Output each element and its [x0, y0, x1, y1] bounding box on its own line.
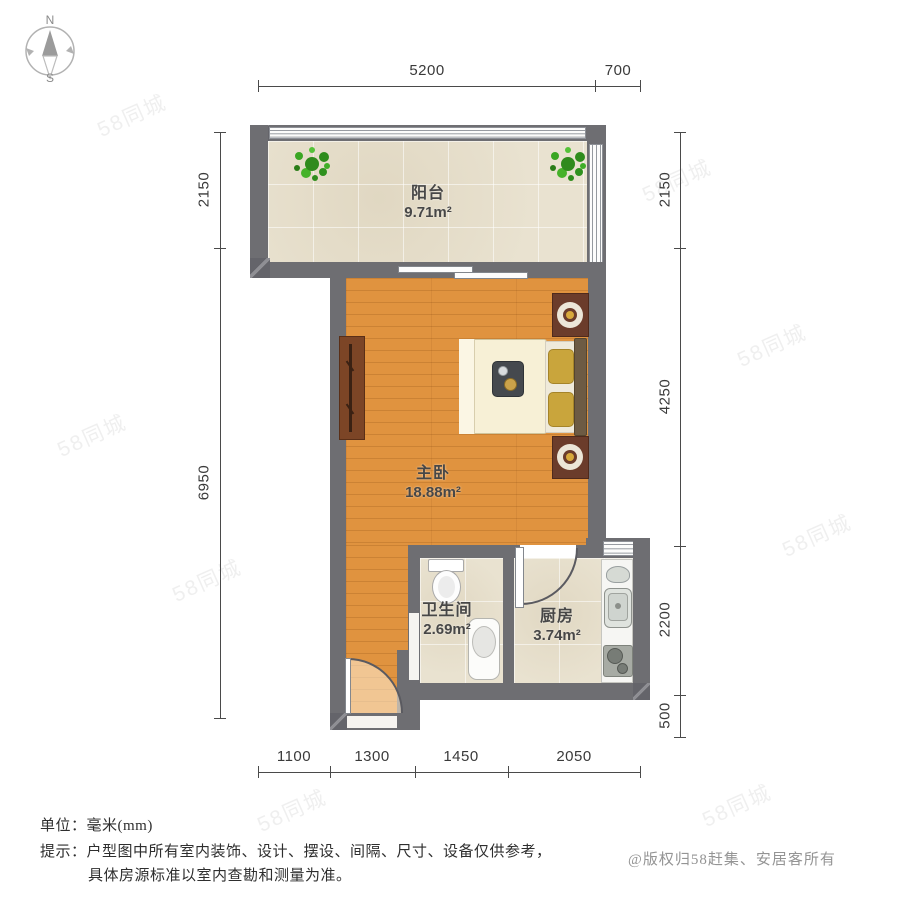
compass-icon: N S — [16, 12, 84, 84]
unit-note: 单位：毫米(mm) — [40, 814, 153, 835]
dim-tick — [640, 766, 641, 778]
wall-segment — [633, 538, 650, 700]
entrance-opening — [347, 716, 404, 728]
bathroom-name: 卫生间 — [397, 601, 497, 620]
pillow — [548, 392, 574, 427]
watermark: 58同城 — [637, 151, 716, 208]
watermark: 58同城 — [167, 551, 246, 608]
bed-fold — [459, 339, 475, 434]
bedroom-area: 18.88m² — [373, 483, 493, 502]
corner-block — [250, 258, 270, 278]
dim-tick — [640, 80, 641, 92]
dim-bottom-3: 2050 — [534, 748, 614, 765]
dim-right-0: 2150 — [657, 155, 674, 225]
wall-segment — [408, 683, 650, 700]
corner-block — [330, 713, 347, 730]
toilet-bowl — [438, 576, 455, 598]
room-label-bedroom: 主卧 18.88m² — [373, 464, 493, 502]
dimension-line — [258, 86, 641, 87]
dim-tick — [258, 766, 259, 778]
tip-line-2: 具体房源标准以室内查勘和测量为准。 — [88, 864, 352, 885]
tv-screen — [349, 344, 352, 432]
dimension-line — [258, 772, 641, 773]
dim-tick — [415, 766, 416, 778]
corner-block — [633, 683, 650, 700]
dim-left-0: 2150 — [196, 155, 213, 225]
room-label-bathroom: 卫生间 2.69m² — [397, 601, 497, 639]
lamp-icon — [557, 302, 583, 328]
tray-plate — [504, 378, 517, 391]
watermark: 58同城 — [732, 316, 811, 373]
dimension-line — [220, 132, 221, 718]
dim-tick — [674, 737, 686, 738]
dimension-line — [680, 132, 681, 737]
balcony-name: 阳台 — [368, 184, 488, 203]
dim-right-3: 500 — [657, 681, 674, 751]
room-label-balcony: 阳台 9.71m² — [368, 184, 488, 222]
kitchen-name: 厨房 — [507, 607, 607, 626]
lamp-icon — [557, 444, 583, 470]
watermark: 58同城 — [777, 506, 856, 563]
balcony-window — [269, 127, 586, 139]
plant-icon — [546, 144, 590, 184]
dim-tick — [214, 248, 226, 249]
compass-south-label: S — [46, 71, 54, 84]
watermark: 58同城 — [697, 776, 776, 833]
kitchen-area: 3.74m² — [507, 626, 607, 645]
dim-bottom-2: 1450 — [421, 748, 501, 765]
dim-top-0: 5200 — [387, 62, 467, 79]
dim-tick — [258, 80, 259, 92]
stove-burner — [607, 648, 623, 664]
kitchen-door-leaf — [515, 547, 524, 608]
dim-tick — [674, 546, 686, 547]
dim-bottom-1: 1300 — [332, 748, 412, 765]
watermark: 58同城 — [52, 406, 131, 463]
tip-line-1: 提示：户型图中所有室内装饰、设计、摆设、间隔、尺寸、设备仅供参考， — [40, 840, 552, 861]
balcony-side-window — [589, 144, 603, 266]
dim-tick — [330, 766, 331, 778]
kitchen-faucet — [606, 566, 630, 583]
dim-right-1: 4250 — [657, 362, 674, 432]
balcony-area: 9.71m² — [368, 203, 488, 222]
watermark: 58同城 — [92, 86, 171, 143]
dim-top-1: 700 — [578, 62, 658, 79]
dim-right-2: 2200 — [657, 585, 674, 655]
dim-tick — [674, 132, 686, 133]
dim-tick — [508, 766, 509, 778]
tray-cup — [498, 366, 508, 376]
kitchen-window — [603, 541, 634, 556]
watermark: 58同城 — [252, 781, 331, 838]
sliding-door-panel — [454, 272, 528, 279]
entrance-door-leaf — [345, 658, 351, 714]
dim-left-1: 6950 — [196, 448, 213, 518]
dim-tick — [674, 248, 686, 249]
dim-tick — [214, 718, 226, 719]
compass-north-label: N — [46, 13, 55, 27]
dim-tick — [674, 695, 686, 696]
dim-bottom-0: 1100 — [254, 748, 334, 765]
tv-cabinet — [339, 336, 365, 440]
dim-tick — [595, 80, 596, 92]
wall-segment — [330, 262, 346, 730]
floorplan-page: 58同城 58同城 58同城 58同城 58同城 58同城 58同城 58同城 … — [0, 0, 900, 900]
plant-icon — [290, 144, 334, 184]
stove-burner — [617, 663, 628, 674]
sink-drain — [615, 603, 621, 609]
wall-segment — [588, 262, 606, 545]
pillow — [548, 349, 574, 384]
bed-headboard — [574, 338, 587, 436]
dim-tick — [214, 132, 226, 133]
bathroom-area: 2.69m² — [397, 620, 497, 639]
room-label-kitchen: 厨房 3.74m² — [507, 607, 607, 645]
wall-segment — [250, 125, 268, 278]
bedroom-name: 主卧 — [373, 464, 493, 483]
copyright-note: @版权归58赶集、安居客所有 — [628, 848, 836, 869]
